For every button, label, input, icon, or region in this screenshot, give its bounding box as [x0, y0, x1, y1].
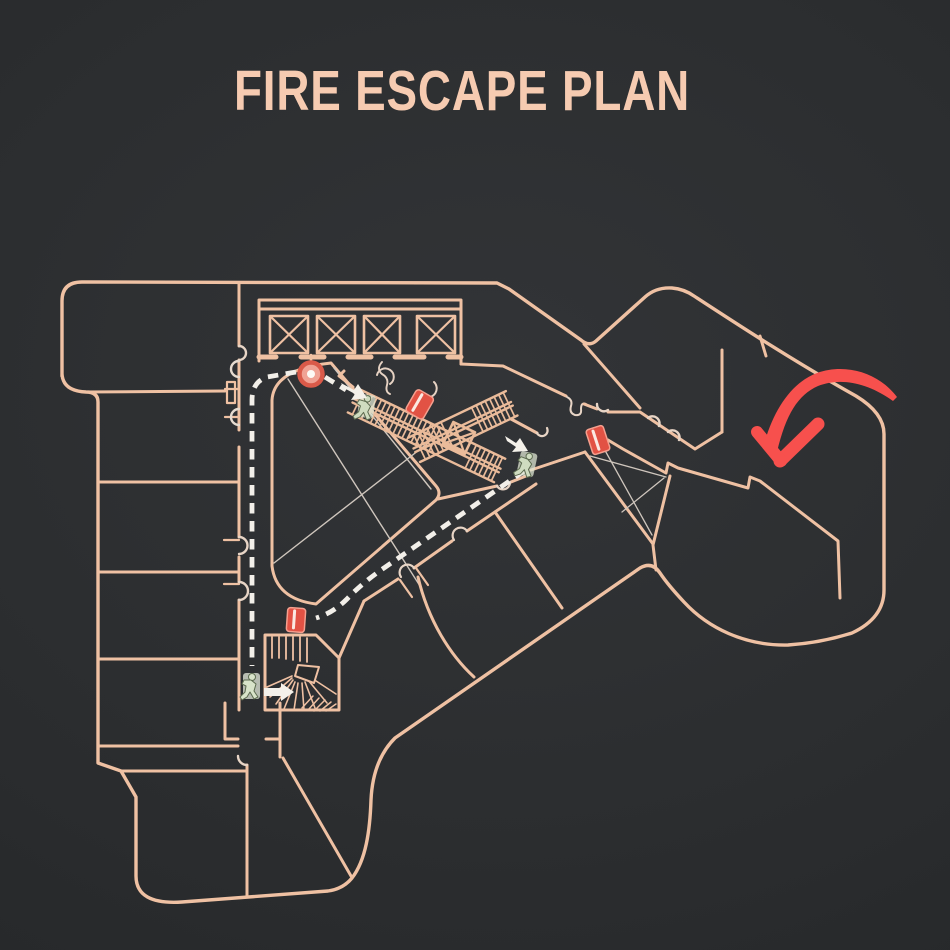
- svg-text:FIRE ESCAPE PLAN: FIRE ESCAPE PLAN: [234, 59, 690, 123]
